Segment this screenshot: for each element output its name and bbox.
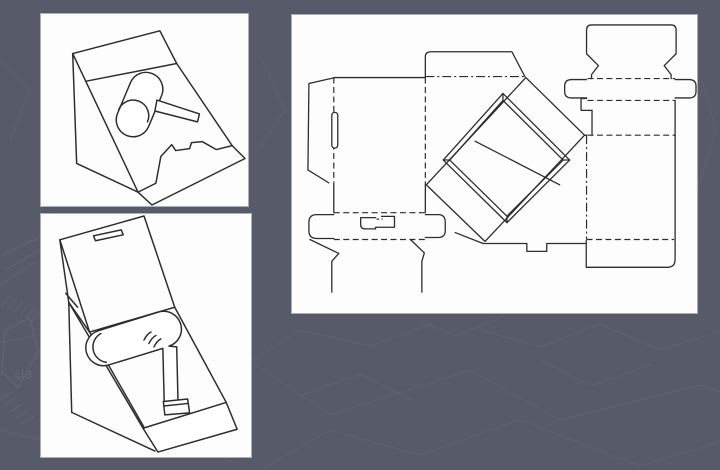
hair-dryer-graphic bbox=[116, 72, 199, 136]
lock-band-right-ear bbox=[425, 215, 445, 238]
slide-canvas: { "slide": { "watermark_text": "sla", "p… bbox=[0, 0, 720, 470]
base-front-strip bbox=[143, 402, 237, 452]
watermark-text: sla bbox=[13, 366, 34, 385]
panel-open-display bbox=[40, 213, 252, 458]
closed-box-sketch bbox=[41, 14, 248, 206]
dieline-sketch bbox=[292, 15, 697, 313]
glue-flap bbox=[308, 78, 335, 183]
lock-slit bbox=[361, 216, 395, 229]
left-panel-cuts bbox=[308, 52, 525, 292]
strip-right-ear bbox=[675, 80, 696, 98]
vent-slot bbox=[332, 112, 338, 148]
front-leg-left bbox=[310, 239, 339, 292]
left-watermark-cluster: sla bbox=[0, 238, 40, 424]
right-strip-cuts bbox=[565, 25, 696, 267]
hair-dryer-product bbox=[86, 311, 182, 409]
tuck-flap bbox=[587, 25, 677, 79]
display-window-panel bbox=[426, 78, 586, 252]
front-leg-right bbox=[410, 239, 424, 292]
strip-left-ear bbox=[565, 80, 587, 98]
window-frame-inner bbox=[450, 100, 563, 216]
open-box-sketch bbox=[41, 214, 251, 457]
panel-dieline bbox=[291, 14, 698, 314]
window-fold-diagonal bbox=[475, 141, 560, 185]
top-dust-flap bbox=[425, 52, 525, 78]
panel-closed-display bbox=[40, 13, 249, 207]
lock-band-left-ear bbox=[309, 215, 334, 239]
strip-bottom-flap bbox=[587, 135, 676, 267]
support-pedestal bbox=[163, 399, 189, 415]
bottom-edge-with-tab bbox=[483, 243, 585, 251]
handle-slot bbox=[94, 230, 124, 241]
wedge-outline bbox=[73, 31, 245, 205]
